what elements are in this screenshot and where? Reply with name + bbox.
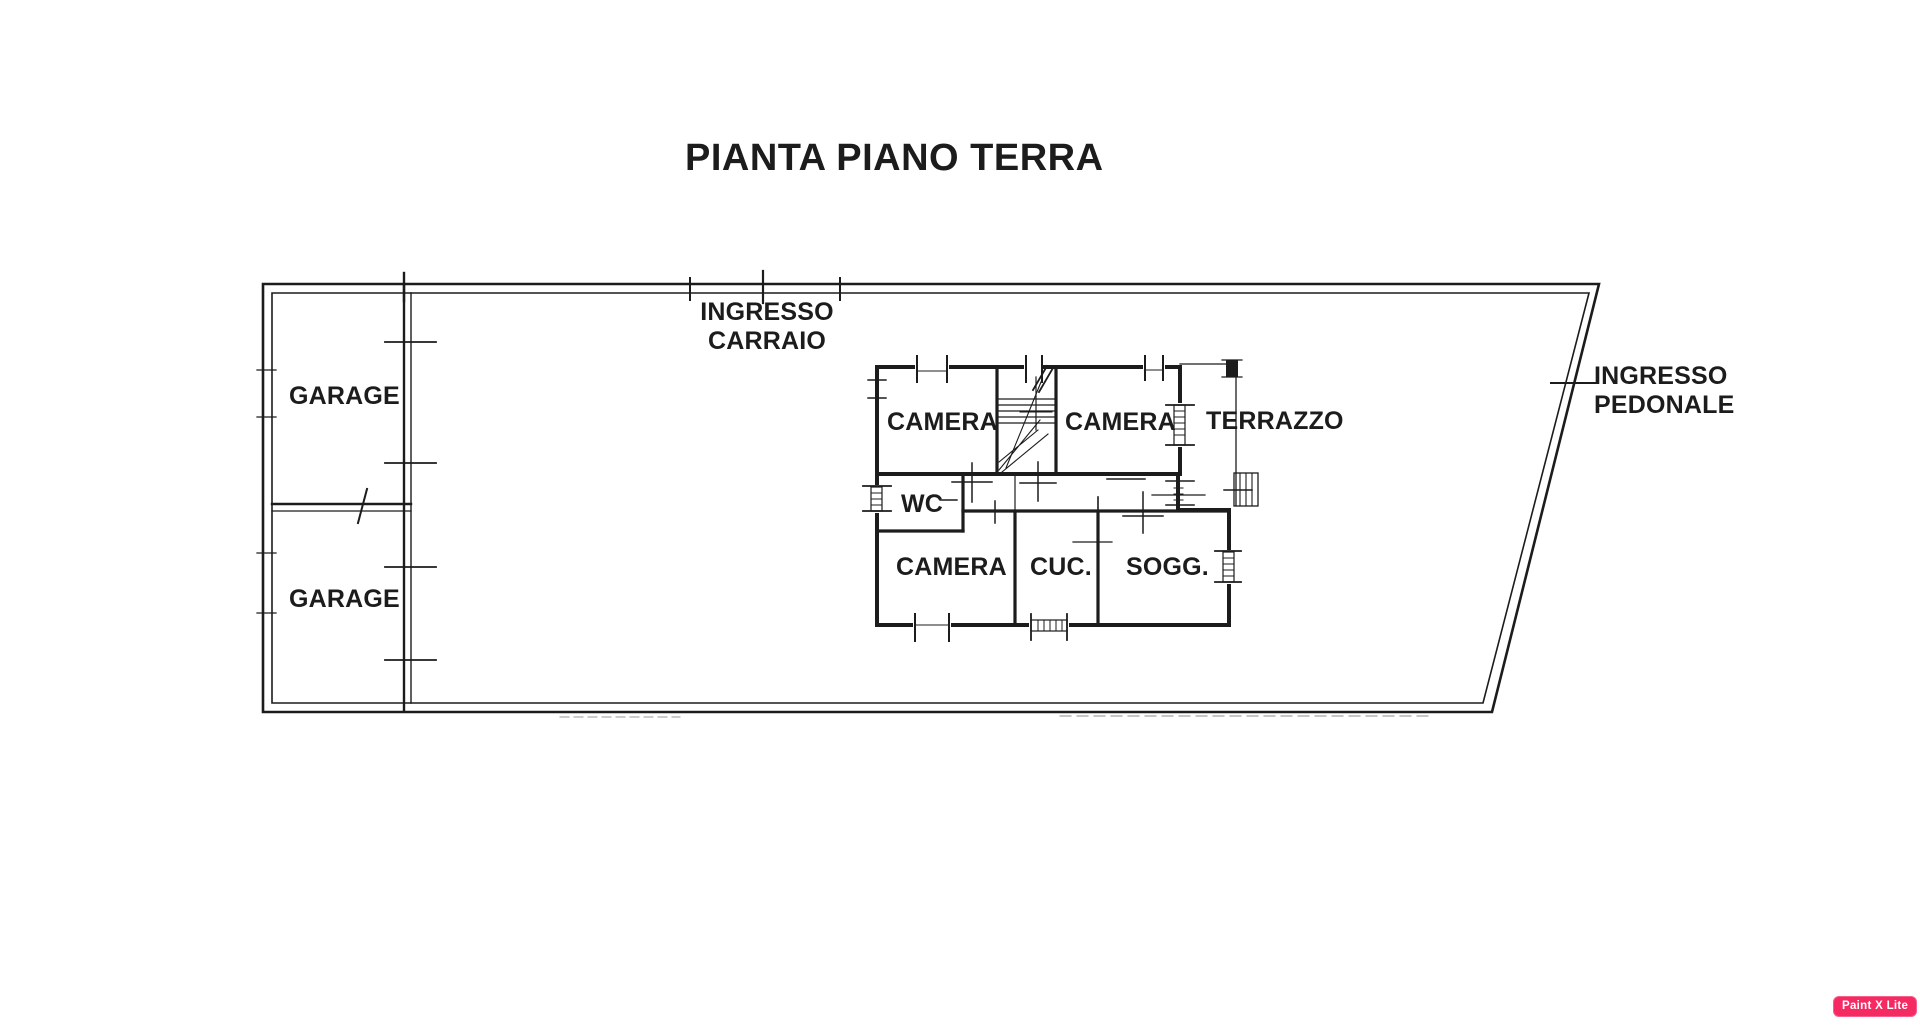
exterior-steps xyxy=(1224,473,1258,506)
label-terrazzo: TERRAZZO xyxy=(1206,407,1344,436)
staircase xyxy=(999,377,1054,472)
label-camera-upper-left: CAMERA xyxy=(887,408,998,437)
label-camera-upper-right: CAMERA xyxy=(1065,408,1176,437)
label-camera-lower: CAMERA xyxy=(896,553,1007,582)
paintx-watermark-badge: Paint X Lite xyxy=(1833,996,1917,1017)
label-ingresso-pedonale-line2: PEDONALE xyxy=(1594,391,1735,420)
label-ingresso-pedonale: INGRESSO PEDONALE xyxy=(1594,362,1735,420)
label-ingresso-pedonale-line1: INGRESSO xyxy=(1594,362,1735,391)
label-wc: WC xyxy=(901,490,943,519)
label-garage-top: GARAGE xyxy=(289,382,400,411)
label-garage-bottom: GARAGE xyxy=(289,585,400,614)
label-soggiorno: SOGG. xyxy=(1126,553,1209,582)
page-title: PIANTA PIANO TERRA xyxy=(685,139,1104,177)
label-ingresso-carraio-line2: CARRAIO xyxy=(690,327,844,356)
label-ingresso-carraio-line1: INGRESSO xyxy=(690,298,844,327)
garage-walls xyxy=(257,273,436,711)
terrazzo-pillar xyxy=(1226,360,1238,377)
label-ingresso-carraio: INGRESSO CARRAIO xyxy=(690,298,844,356)
label-cucina: CUC. xyxy=(1030,553,1092,582)
